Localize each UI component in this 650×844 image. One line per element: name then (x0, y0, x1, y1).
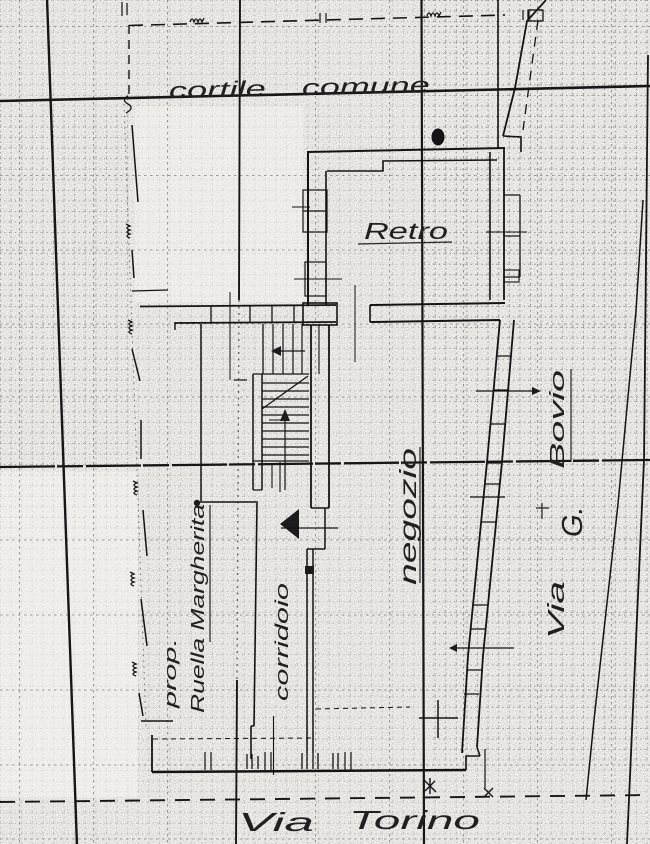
svg-text:cortile: cortile (169, 76, 267, 103)
svg-text:Ruella Margherita: Ruella Margherita (188, 504, 208, 713)
svg-text:Retro: Retro (364, 218, 448, 244)
svg-text:prop.: prop. (161, 638, 180, 710)
svg-text:Via: Via (543, 581, 569, 639)
svg-text:comune: comune (302, 72, 430, 100)
svg-text:G.: G. (557, 506, 589, 537)
svg-text:Torino: Torino (349, 805, 480, 835)
svg-text:negozio: negozio (395, 448, 421, 585)
svg-text:corridoio: corridoio (272, 583, 292, 701)
svg-text:Via: Via (238, 807, 314, 837)
svg-text:Bovio: Bovio (547, 370, 569, 469)
